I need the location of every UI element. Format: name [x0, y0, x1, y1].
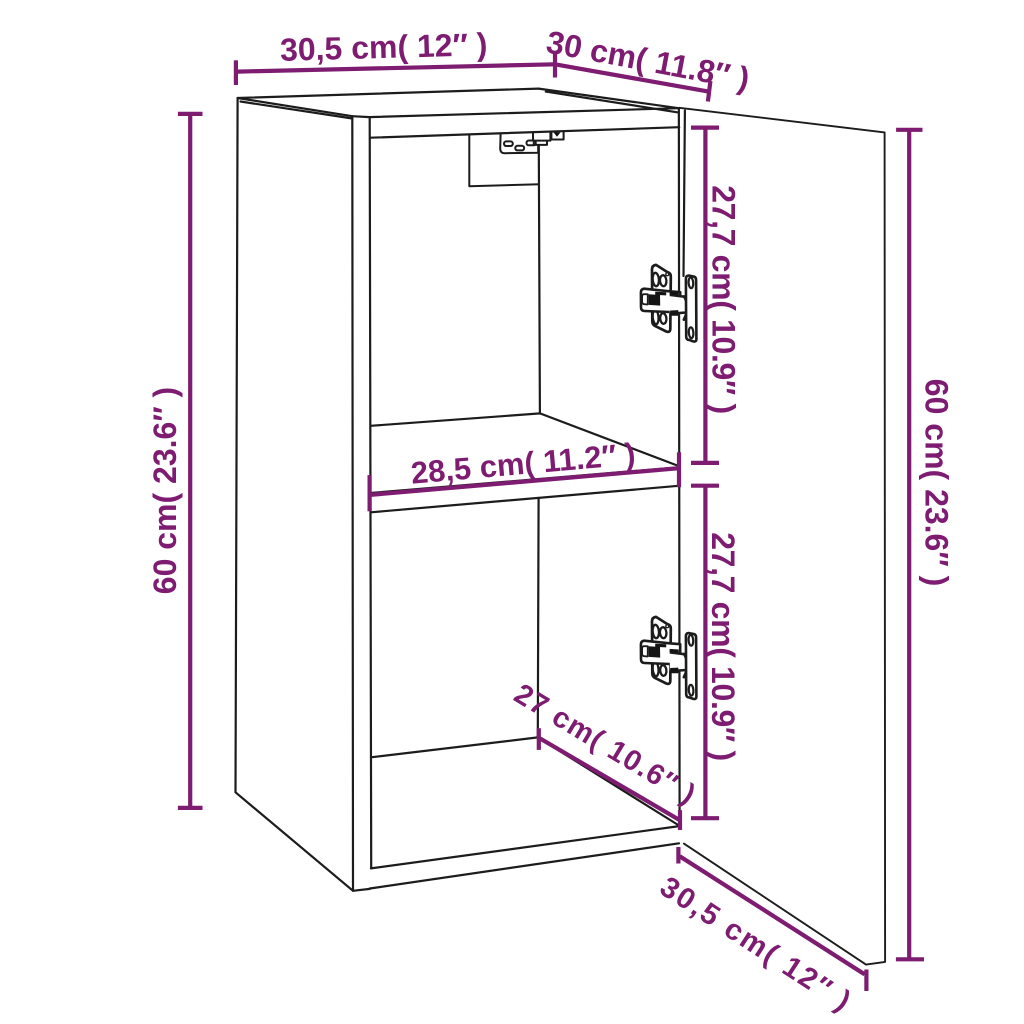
svg-text:30,5 cm( 12″ ): 30,5 cm( 12″ ) — [280, 26, 488, 68]
svg-text:60 cm( 23.6″ ): 60 cm( 23.6″ ) — [147, 387, 183, 594]
svg-text:60 cm( 23.6″ ): 60 cm( 23.6″ ) — [919, 379, 955, 586]
svg-text:27,7 cm( 10.9″ ): 27,7 cm( 10.9″ ) — [706, 185, 742, 414]
svg-text:27,7 cm( 10.9″ ): 27,7 cm( 10.9″ ) — [705, 532, 741, 761]
